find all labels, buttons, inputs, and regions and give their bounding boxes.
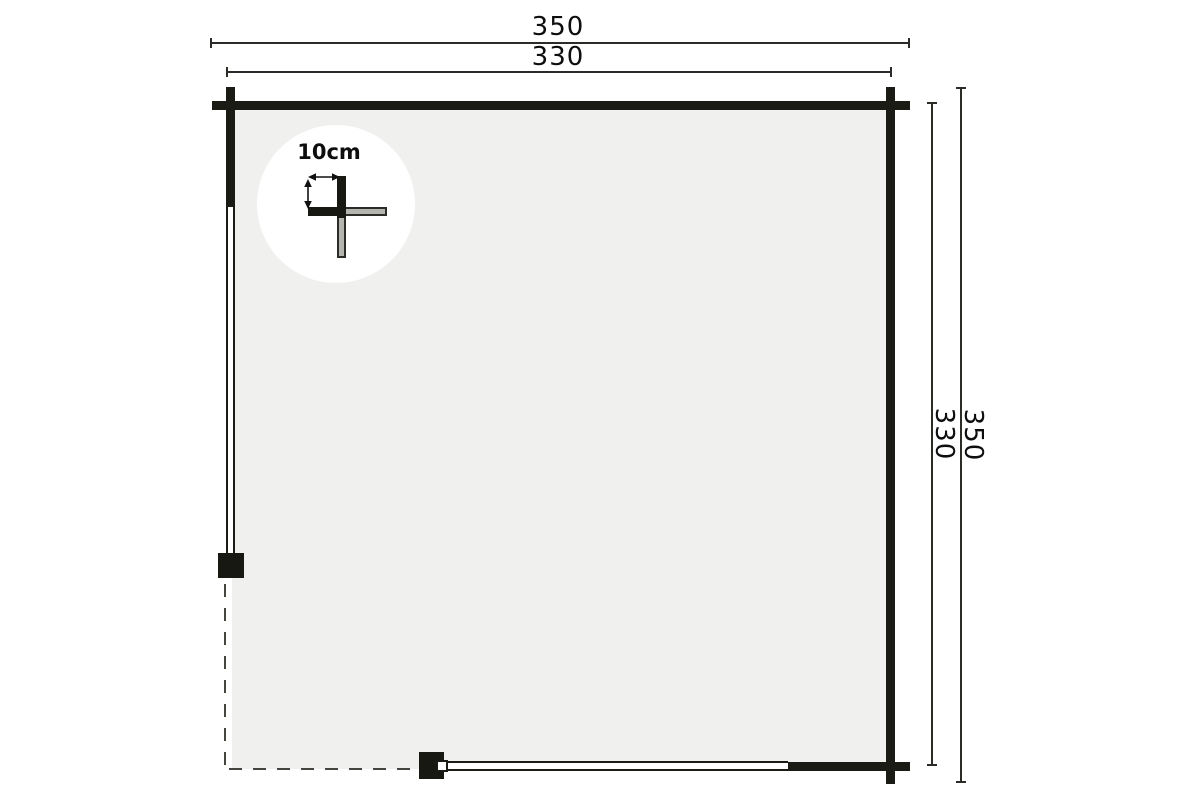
- height-arrow-icon: [303, 179, 313, 209]
- dimension-tick: [908, 38, 910, 48]
- dimension-tick: [956, 781, 966, 783]
- wall-bottom-segment: [788, 762, 910, 771]
- open-wall-bottom: [444, 761, 788, 771]
- post-wall-junction: [436, 760, 448, 772]
- floor-plan-canvas: 350 330 330 350 10cm: [0, 0, 1200, 800]
- dimension-tick: [890, 67, 892, 77]
- open-side-dashed-horizontal: [229, 768, 419, 770]
- log-plan-arm-bottom: [337, 212, 346, 258]
- log-end-top-left: [226, 87, 235, 207]
- open-side-dashed-vertical: [224, 584, 226, 770]
- wall-right: [886, 87, 895, 784]
- log-plan-arm-right: [341, 207, 387, 216]
- dimension-line-top-inner: [226, 71, 892, 73]
- dimension-label-top-outer: 350: [508, 13, 608, 41]
- dimension-label-right-inner: 330: [929, 404, 959, 464]
- dimension-label-right-outer: 350: [958, 405, 988, 465]
- dimension-tick: [956, 87, 966, 89]
- dimension-label-top-inner: 330: [508, 43, 608, 71]
- dimension-tick: [210, 38, 212, 48]
- dimension-tick: [927, 102, 937, 104]
- dimension-tick: [226, 67, 228, 77]
- detail-dimension-label: 10cm: [289, 140, 369, 164]
- wall-top: [212, 101, 910, 110]
- log-section-horizontal: [308, 207, 346, 216]
- open-wall-left: [226, 206, 235, 554]
- corner-post-left: [218, 553, 244, 578]
- dimension-tick: [927, 764, 937, 766]
